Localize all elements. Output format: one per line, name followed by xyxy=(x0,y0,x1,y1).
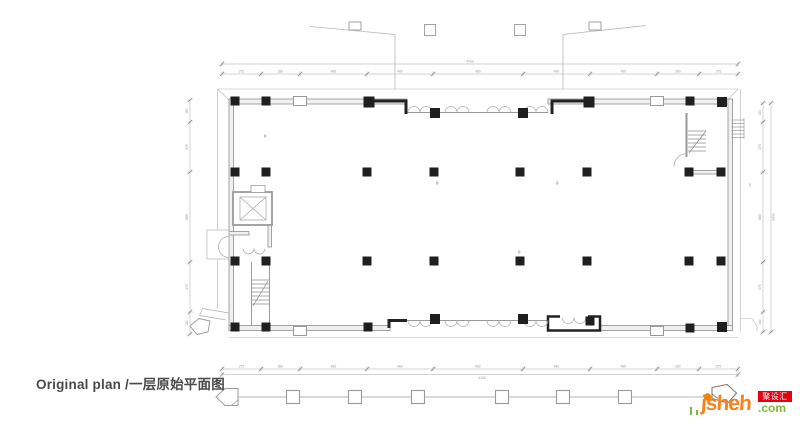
structural-column xyxy=(231,257,240,266)
thick-wall-bottom-left xyxy=(389,321,407,329)
exterior-walls xyxy=(229,99,733,331)
structural-column xyxy=(231,168,240,177)
dim-label: 480 xyxy=(331,364,337,368)
structural-column xyxy=(231,97,240,106)
site-square xyxy=(425,25,436,36)
corner-step-bottom-right xyxy=(741,318,758,331)
structural-column xyxy=(364,97,375,108)
structural-column xyxy=(430,257,439,266)
site-square xyxy=(287,391,300,404)
elevator xyxy=(233,186,272,226)
wall-shaft-box xyxy=(651,327,664,336)
site-square xyxy=(349,391,362,404)
wall-lobby xyxy=(229,232,249,236)
plan-caption: Original plan /一层原始平面图 xyxy=(36,373,225,393)
dim-label: 480 xyxy=(397,69,403,73)
dim-label: 480 xyxy=(331,69,337,73)
structural-column xyxy=(686,324,695,333)
site-square xyxy=(412,391,425,404)
site-square xyxy=(515,25,526,36)
door-swings xyxy=(219,107,688,327)
dim-label: 380 xyxy=(675,364,681,368)
structural-column xyxy=(363,168,372,177)
dim-label: 885 xyxy=(185,214,189,220)
column-grid xyxy=(231,97,728,333)
site-bracket xyxy=(349,22,361,30)
dim-label: 375 xyxy=(185,144,189,150)
interior-annotation xyxy=(436,181,439,185)
interior-annotation xyxy=(556,181,559,185)
structural-column xyxy=(584,97,595,108)
dim-label: 480 xyxy=(554,364,560,368)
thick-walls xyxy=(369,101,600,331)
dim-label: 375 xyxy=(758,144,762,150)
dim-label: 4430 xyxy=(478,376,486,380)
site-square xyxy=(496,391,509,404)
door-arc-bottom-3 xyxy=(487,321,511,327)
dim-label: 480 xyxy=(621,69,627,73)
dim-label: 375 xyxy=(239,69,245,73)
structural-column xyxy=(262,323,271,332)
entry-arrow-bottom-left xyxy=(190,319,210,335)
dim-label: 480 xyxy=(475,364,481,368)
logo-tld: .com xyxy=(758,401,786,415)
dim-label: 480 xyxy=(621,364,627,368)
dim-label: 180 xyxy=(185,108,189,114)
outer-boundary xyxy=(218,89,758,338)
porch-left xyxy=(190,230,229,335)
dim-label: 180 xyxy=(758,319,762,325)
structural-column xyxy=(686,97,695,106)
structural-column xyxy=(685,257,694,266)
site-squares xyxy=(287,25,632,404)
structural-column xyxy=(231,323,240,332)
stair-left-cutline xyxy=(253,281,268,306)
logo-wordmark[interactable]: jsheh xyxy=(700,392,752,416)
structural-column xyxy=(583,257,592,266)
wall-shaft-box xyxy=(651,97,664,106)
structural-column xyxy=(717,257,726,266)
wall-bottom-right xyxy=(600,326,733,331)
wall-shaft-box xyxy=(294,327,307,336)
site-square xyxy=(557,391,570,404)
elevator-counterweight xyxy=(251,186,265,193)
dim-label: 375 xyxy=(239,364,245,368)
door-arc-top-2 xyxy=(445,107,469,113)
dim-label: 480 xyxy=(475,69,481,73)
dim-label: 380 xyxy=(278,364,284,368)
dim-label: 380 xyxy=(675,69,681,73)
structural-column xyxy=(586,317,595,326)
floor-plan-sheet: 3753804804804804804803803754430375380480… xyxy=(0,0,800,426)
entrance-recess-walls xyxy=(407,113,548,321)
structural-column xyxy=(262,97,271,106)
door-arc-bottom-1 xyxy=(408,321,432,327)
interior-annotation xyxy=(264,134,267,138)
dim-label: 375 xyxy=(185,284,189,290)
door-arc-bottom-2 xyxy=(445,321,469,327)
structural-column xyxy=(518,314,528,324)
exterior-steps-right xyxy=(732,118,745,139)
stair-right-cutline xyxy=(689,131,706,153)
site-slant-right xyxy=(563,26,646,35)
floor-plan-drawing: 3753804804804804804803803754430375380480… xyxy=(0,0,800,426)
structural-column xyxy=(430,168,439,177)
stair-right-treads xyxy=(688,131,706,153)
structural-column xyxy=(364,323,373,332)
structural-column xyxy=(262,168,271,177)
dim-label: 375 xyxy=(758,284,762,290)
stair-left xyxy=(252,262,270,325)
ramp-bottom-left xyxy=(200,309,230,321)
door-arc-top-1 xyxy=(408,107,432,113)
door-arc-top-3 xyxy=(487,107,511,113)
dim-label: 380 xyxy=(278,69,284,73)
dim-label: 480 xyxy=(554,69,560,73)
door-arc-stair-right xyxy=(674,154,687,167)
door-arc-porch-lower xyxy=(219,247,230,258)
dim-label: 885 xyxy=(758,214,762,220)
structural-column xyxy=(430,314,440,324)
interior-annotation xyxy=(518,250,521,254)
interior-annotations xyxy=(264,134,750,254)
chamfer-top-left xyxy=(218,90,230,101)
structural-column xyxy=(583,168,592,177)
dim-label: 180 xyxy=(758,110,762,116)
dim-label: 2430 xyxy=(772,213,776,221)
dim-label: 180 xyxy=(185,320,189,326)
stair-left-treads xyxy=(252,280,269,306)
dim-label: 375 xyxy=(716,364,722,368)
structural-column xyxy=(717,97,727,107)
site-lines-top xyxy=(310,26,646,90)
structural-column xyxy=(717,322,727,332)
door-arc-stair-lobby xyxy=(243,249,265,255)
wall-shaft-box xyxy=(294,97,307,106)
logo-leaf-accents xyxy=(691,407,697,415)
structural-column xyxy=(262,257,271,266)
structural-column xyxy=(363,257,372,266)
stair-right xyxy=(687,113,745,157)
structural-column xyxy=(430,108,440,118)
porch-outline xyxy=(207,230,229,259)
structural-column xyxy=(717,168,726,177)
site-square xyxy=(619,391,632,404)
structural-column xyxy=(518,108,528,118)
site-bracket xyxy=(589,22,601,30)
structural-column xyxy=(685,168,694,177)
door-arc-porch-upper xyxy=(219,237,230,248)
structural-column xyxy=(516,257,525,266)
dim-label: 4430 xyxy=(466,59,474,63)
structural-column xyxy=(516,168,525,177)
dim-label: 375 xyxy=(716,69,722,73)
dim-label: 480 xyxy=(397,364,403,368)
